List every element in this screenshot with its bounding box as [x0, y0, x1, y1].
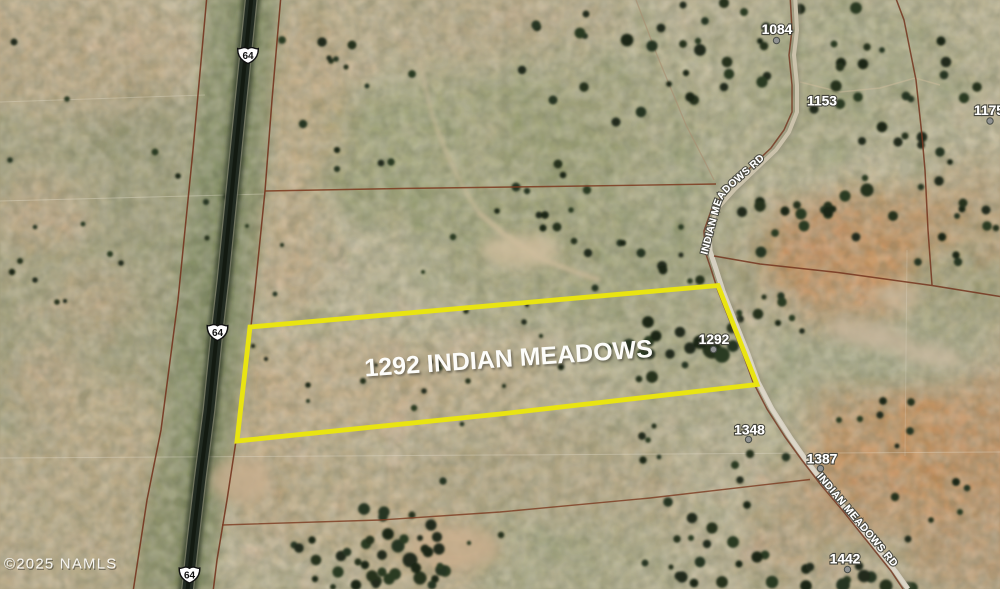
- svg-text:1348: 1348: [734, 423, 765, 438]
- svg-text:64: 64: [184, 570, 196, 581]
- svg-text:1292: 1292: [699, 332, 730, 347]
- svg-text:©2025 NAMLS: ©2025 NAMLS: [4, 556, 117, 573]
- svg-text:1387: 1387: [807, 452, 838, 467]
- svg-text:1442: 1442: [830, 552, 861, 567]
- svg-text:1175: 1175: [974, 103, 1000, 118]
- svg-text:64: 64: [212, 328, 224, 339]
- svg-text:64: 64: [242, 51, 254, 62]
- svg-text:1084: 1084: [762, 22, 793, 37]
- svg-text:1153: 1153: [807, 94, 837, 109]
